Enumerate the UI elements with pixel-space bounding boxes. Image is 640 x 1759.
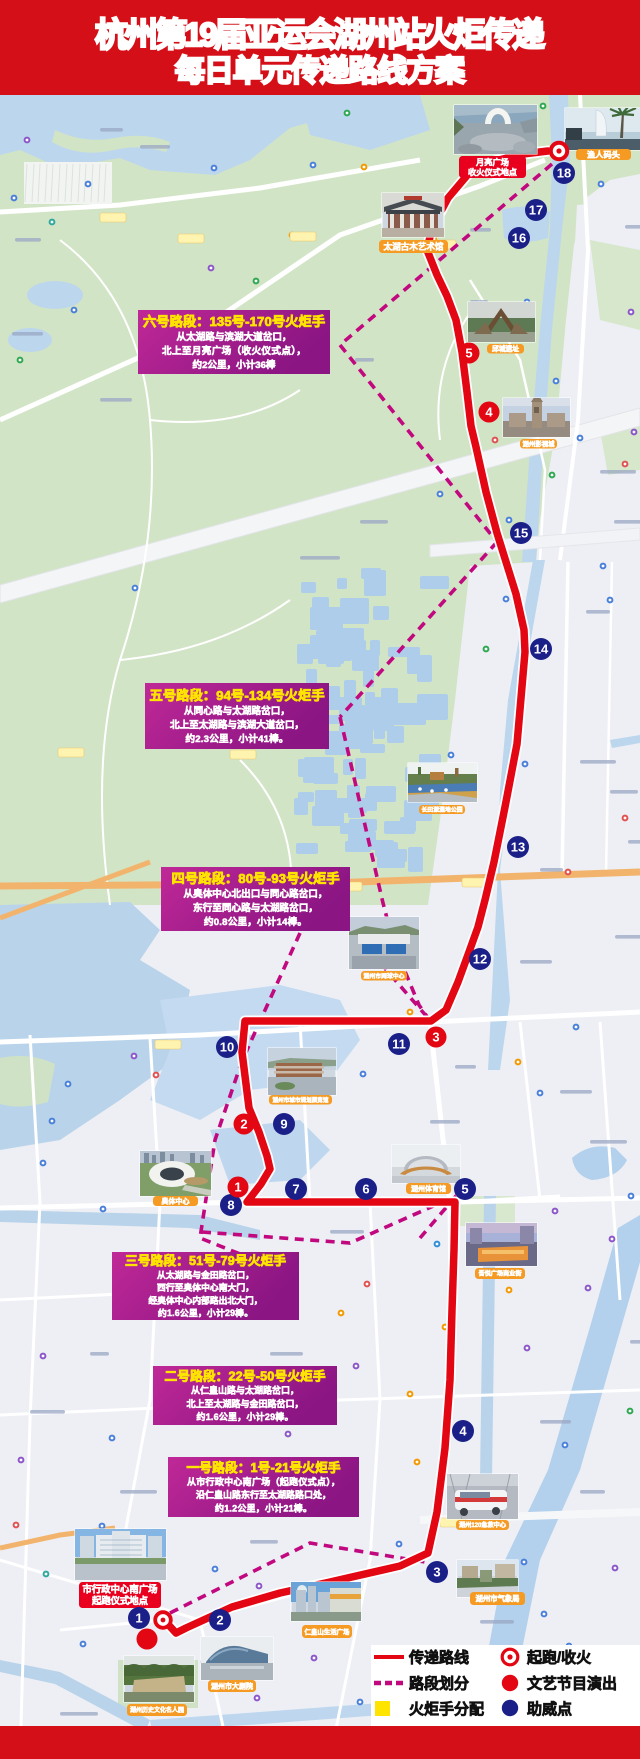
svg-text:经奥体中心内部路出北大门，: 经奥体中心内部路出北大门，	[149, 1295, 263, 1306]
svg-text:邱城遗址: 邱城遗址	[492, 344, 519, 353]
svg-text:湖州市城市规划展览馆: 湖州市城市规划展览馆	[273, 1096, 329, 1104]
svg-text:湖州历史文化名人园: 湖州历史文化名人园	[130, 1706, 184, 1714]
svg-text:路段划分: 路段划分	[409, 1675, 469, 1693]
svg-text:约1.2公里，小计21棒。: 约1.2公里，小计21棒。	[215, 1502, 312, 1513]
svg-text:北上至月亮广场（收火仪式点），: 北上至月亮广场（收火仪式点），	[162, 345, 306, 357]
svg-text:1: 1	[234, 1180, 241, 1195]
svg-text:火炬手分配: 火炬手分配	[409, 1700, 484, 1718]
svg-text:每日单元传递路线方案: 每日单元传递路线方案	[175, 54, 466, 88]
svg-text:西行至奥体中心南大门，: 西行至奥体中心南大门，	[157, 1282, 254, 1293]
svg-text:三号路段：51号-79号火炬手: 三号路段：51号-79号火炬手	[125, 1253, 286, 1268]
svg-text:从奥体中心北出口与同心路岔口，: 从奥体中心北出口与同心路岔口，	[184, 888, 328, 900]
svg-text:1: 1	[135, 1611, 142, 1626]
svg-text:17: 17	[529, 203, 543, 218]
svg-text:12: 12	[473, 952, 487, 967]
svg-text:杭州第19届亚运会湖州站火炬传递: 杭州第19届亚运会湖州站火炬传递	[95, 16, 545, 53]
svg-text:14: 14	[534, 642, 549, 657]
svg-text:4: 4	[485, 405, 493, 420]
svg-text:约2.3公里，小计41棒。: 约2.3公里，小计41棒。	[186, 733, 289, 745]
svg-text:8: 8	[227, 1198, 234, 1213]
svg-text:湖州120急救中心: 湖州120急救中心	[459, 1521, 507, 1529]
svg-text:吾悦广场商业街: 吾悦广场商业街	[479, 1270, 523, 1278]
svg-text:月亮广场: 月亮广场	[475, 157, 509, 167]
svg-text:二号路段：22号-50号火炬手: 二号路段：22号-50号火炬手	[165, 1369, 326, 1384]
svg-text:约2公里，小计36棒: 约2公里，小计36棒	[193, 359, 276, 371]
svg-text:四号路段：80号-93号火炬手: 四号路段：80号-93号火炬手	[172, 870, 340, 886]
svg-text:一号路段：1号-21号火炬手: 一号路段：1号-21号火炬手	[187, 1460, 341, 1475]
svg-text:湖州体育馆: 湖州体育馆	[411, 1184, 446, 1193]
svg-text:渔人码头: 渔人码头	[587, 150, 620, 160]
svg-text:16: 16	[512, 231, 526, 246]
svg-text:六号路段：135号-170号火炬手: 六号路段：135号-170号火炬手	[143, 313, 325, 329]
svg-text:助威点: 助威点	[527, 1700, 572, 1718]
svg-text:9: 9	[280, 1117, 287, 1132]
svg-text:2: 2	[216, 1613, 223, 1628]
svg-text:东行至同心路与太湖路岔口，: 东行至同心路与太湖路岔口，	[193, 902, 318, 914]
svg-text:5: 5	[461, 1182, 468, 1197]
svg-text:湖州影视城: 湖州影视城	[523, 439, 556, 448]
svg-text:从同心路与太湖路岔口，: 从同心路与太湖路岔口，	[184, 705, 290, 717]
svg-text:5: 5	[465, 346, 472, 361]
svg-text:11: 11	[392, 1037, 406, 1052]
svg-text:从太湖路与金田路岔口，: 从太湖路与金田路岔口，	[157, 1269, 254, 1280]
svg-text:13: 13	[511, 840, 525, 855]
svg-text:起跑仪式地点: 起跑仪式地点	[91, 1595, 149, 1606]
svg-text:从仁皇山路与太湖路岔口，: 从仁皇山路与太湖路岔口，	[191, 1385, 299, 1396]
svg-text:文艺节目演出: 文艺节目演出	[527, 1675, 617, 1693]
svg-text:18: 18	[557, 166, 571, 181]
svg-text:沿仁皇山路东行至太湖路路口处，: 沿仁皇山路东行至太湖路路口处，	[196, 1489, 331, 1500]
svg-text:收火仪式地点: 收火仪式地点	[468, 167, 518, 177]
svg-text:10: 10	[220, 1040, 234, 1055]
svg-text:约1.6公里，小计29棒。: 约1.6公里，小计29棒。	[158, 1307, 253, 1318]
svg-text:6: 6	[362, 1182, 369, 1197]
svg-text:7: 7	[292, 1182, 299, 1197]
svg-text:3: 3	[432, 1030, 439, 1045]
svg-text:五号路段：94号-134号火炬手: 五号路段：94号-134号火炬手	[150, 687, 325, 703]
svg-text:湖州市气象局: 湖州市气象局	[476, 1594, 520, 1603]
svg-text:4: 4	[459, 1424, 467, 1439]
svg-text:起跑/收火: 起跑/收火	[526, 1649, 592, 1667]
svg-text:湖州市网球中心: 湖州市网球中心	[364, 972, 405, 980]
svg-text:传递路线: 传递路线	[408, 1649, 469, 1667]
svg-text:3: 3	[433, 1565, 440, 1580]
svg-text:从市行政中心南广场（起跑仪式点），: 从市行政中心南广场（起跑仪式点），	[187, 1476, 340, 1487]
svg-text:从太湖路与滨湖大道岔口，: 从太湖路与滨湖大道岔口，	[177, 331, 292, 343]
svg-text:约1.6公里，小计29棒。: 约1.6公里，小计29棒。	[197, 1411, 294, 1422]
svg-text:市行政中心南广场: 市行政中心南广场	[83, 1584, 158, 1595]
svg-text:约0.8公里，小计14棒。: 约0.8公里，小计14棒。	[204, 916, 307, 928]
svg-text:2: 2	[240, 1117, 247, 1132]
svg-text:北上至太湖路与滨湖大道岔口，: 北上至太湖路与滨湖大道岔口，	[170, 719, 304, 731]
svg-text:太湖古木艺术馆: 太湖古木艺术馆	[384, 241, 444, 252]
svg-text:长田漾湿地公园: 长田漾湿地公园	[422, 806, 463, 814]
svg-text:仁皇山生活广场: 仁皇山生活广场	[305, 1627, 351, 1636]
svg-text:15: 15	[514, 526, 528, 541]
svg-text:湖州市大剧院: 湖州市大剧院	[211, 1682, 253, 1691]
svg-text:奥体中心: 奥体中心	[162, 1197, 190, 1206]
svg-text:北上至太湖路与金田路岔口，: 北上至太湖路与金田路岔口，	[187, 1398, 304, 1409]
